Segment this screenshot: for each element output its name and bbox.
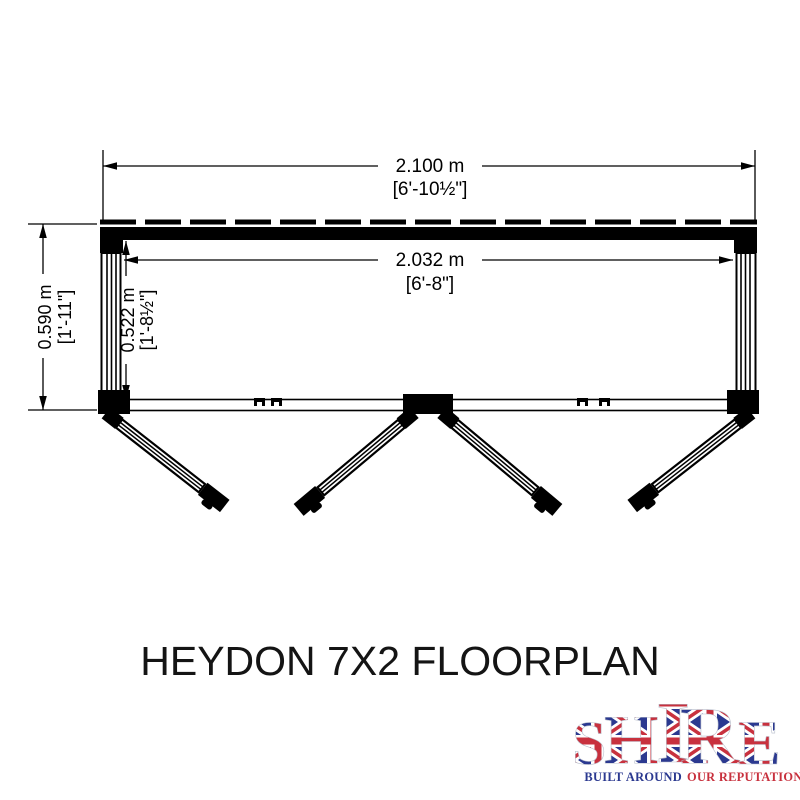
page-title: HEYDON 7X2 FLOORPLAN	[0, 638, 800, 685]
dim-internal-width-imperial: [6'-8"]	[406, 274, 454, 295]
dim-overall-width-imperial: [6'-10½"]	[393, 179, 468, 200]
fitting-mark-notch	[257, 402, 262, 406]
logo-letter-s: S	[572, 710, 606, 778]
dim-overall-width-metric: 2.100 m	[396, 156, 465, 177]
bifold-doors	[98, 407, 759, 520]
logo-letter-h: H	[604, 702, 658, 779]
logo-wordmark: S H I R E	[572, 685, 781, 782]
logo-tagline-right: OUR REPUTATION	[687, 770, 800, 784]
door-threshold-right	[450, 400, 733, 411]
dim-internal-width-metric: 2.032 m	[396, 250, 465, 271]
dim-internal-depth-imperial: [1'-8½"]	[137, 290, 157, 351]
dimension-overall-depth: 0.590 m [1'-11"]	[28, 224, 97, 410]
door-leaf-outer-right	[627, 407, 759, 516]
arrowhead	[39, 224, 47, 238]
fitting-mark-notch	[580, 402, 585, 406]
door-leaf-inner-left	[294, 407, 423, 520]
arrowhead	[39, 396, 47, 410]
dimension-overall-width: 2.100 m [6'-10½"]	[103, 150, 755, 220]
top-wall	[100, 227, 757, 240]
shire-logo: S H I R E BUILT AROUND OUR REPUTATION	[570, 684, 800, 794]
logo-letter-r: R	[680, 690, 740, 781]
right-wall	[734, 240, 757, 412]
logo-tagline: BUILT AROUND OUR REPUTATION	[584, 770, 800, 784]
dim-internal-depth-metric: 0.522 m	[118, 287, 138, 352]
dimension-internal-width: 2.032 m [6'-8"]	[124, 250, 733, 295]
logo-tagline-left: BUILT AROUND	[584, 770, 682, 784]
dim-overall-depth-imperial: [1'-11"]	[55, 290, 75, 345]
fitting-mark-notch	[274, 402, 279, 406]
door-leaf-outer-left	[98, 407, 230, 516]
floorplan-drawing: 2.100 m [6'-10½"] 0.590 m [1'-11"]	[0, 0, 800, 560]
arrowhead	[741, 162, 755, 170]
arrowhead	[103, 162, 117, 170]
dimension-internal-depth: 0.522 m [1'-8½"]	[118, 241, 157, 399]
wall-block	[734, 240, 757, 253]
arrowhead	[719, 256, 733, 264]
dim-overall-depth-metric: 0.590 m	[35, 284, 55, 349]
door-leaf-inner-right	[433, 407, 562, 520]
fitting-mark-notch	[602, 402, 607, 406]
logo-letter-e: E	[738, 707, 781, 778]
arrowhead	[122, 241, 130, 255]
wall-block	[100, 240, 123, 253]
